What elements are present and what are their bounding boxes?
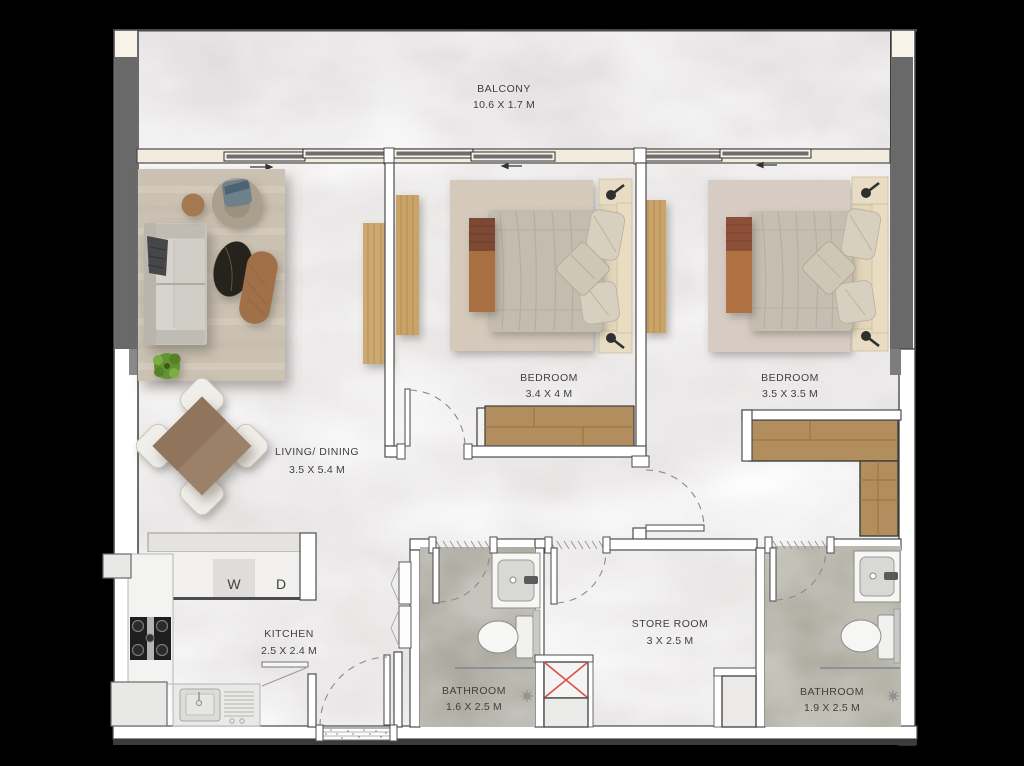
svg-text:3.5 X 3.5 M: 3.5 X 3.5 M: [762, 388, 818, 400]
svg-text:W: W: [227, 576, 241, 592]
svg-text:2.5 X 2.4 M: 2.5 X 2.4 M: [261, 645, 317, 657]
svg-text:1.6 X 2.5 M: 1.6 X 2.5 M: [446, 701, 502, 713]
svg-text:3 X 2.5 M: 3 X 2.5 M: [647, 635, 694, 647]
svg-text:KITCHEN: KITCHEN: [264, 628, 314, 640]
svg-text:BEDROOM: BEDROOM: [520, 372, 578, 384]
svg-text:BATHROOM: BATHROOM: [800, 686, 864, 698]
svg-text:BATHROOM: BATHROOM: [442, 685, 506, 697]
svg-text:D: D: [276, 576, 286, 592]
svg-text:3.5 X 5.4 M: 3.5 X 5.4 M: [289, 464, 345, 476]
svg-text:3.4 X 4 M: 3.4 X 4 M: [526, 388, 573, 400]
svg-text:10.6 X 1.7 M: 10.6 X 1.7 M: [473, 99, 535, 111]
svg-text:STORE ROOM: STORE ROOM: [632, 618, 709, 630]
svg-text:BEDROOM: BEDROOM: [761, 372, 819, 384]
svg-text:BALCONY: BALCONY: [477, 83, 531, 95]
svg-text:LIVING/ DINING: LIVING/ DINING: [275, 446, 359, 458]
svg-text:1.9 X 2.5 M: 1.9 X 2.5 M: [804, 702, 860, 714]
